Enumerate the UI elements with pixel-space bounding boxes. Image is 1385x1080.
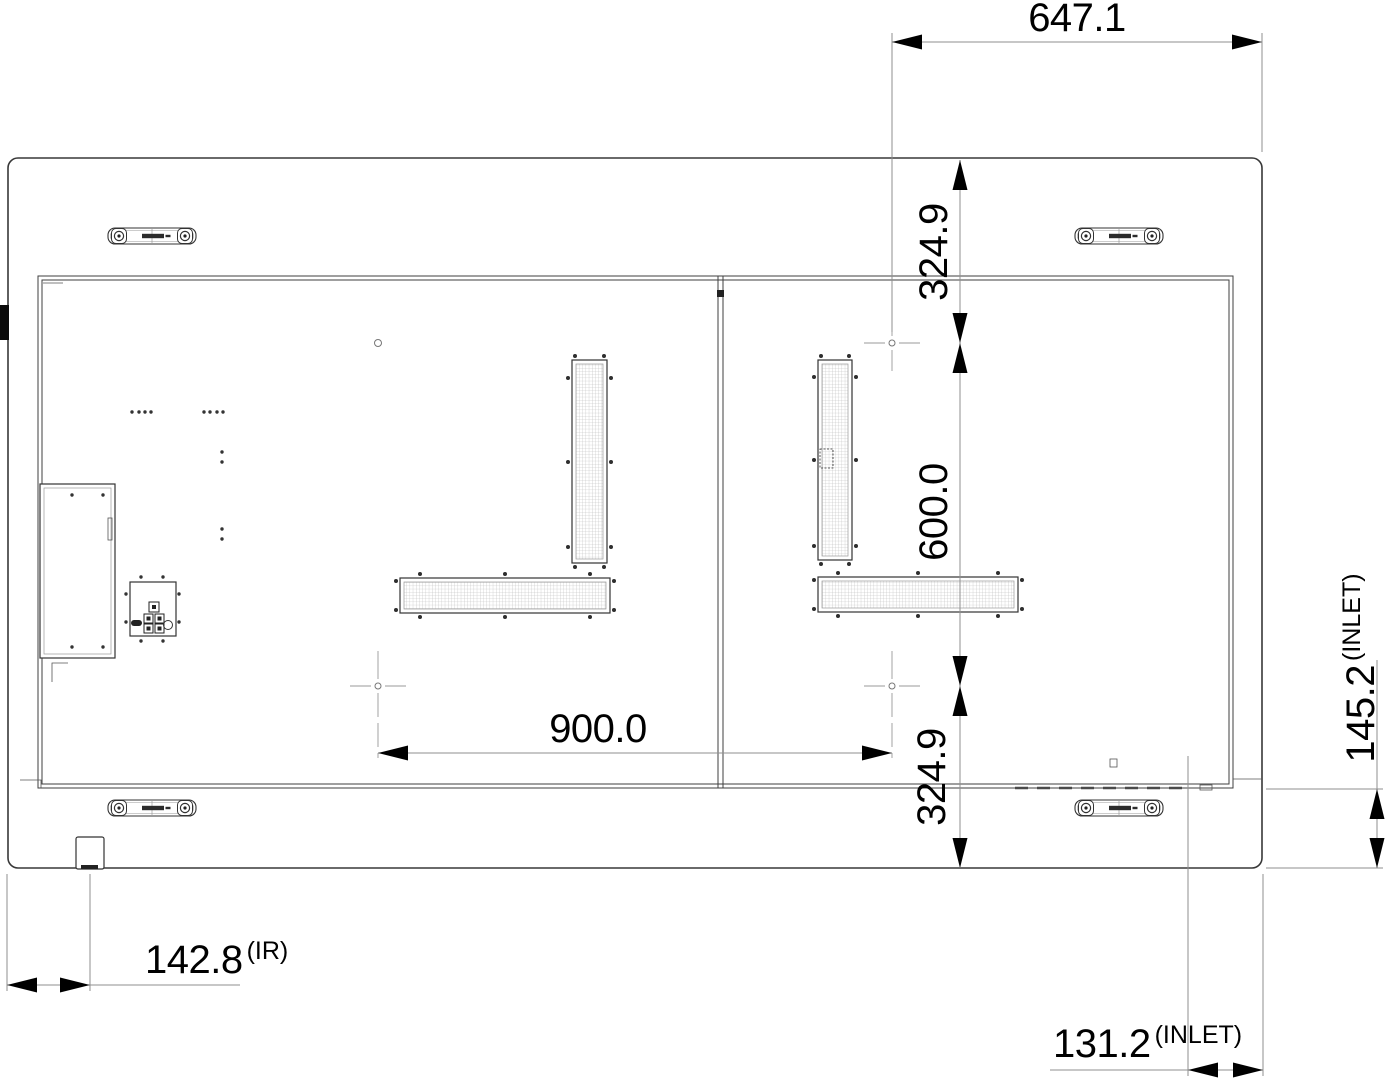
- dim-ir-label: 142.8(IR): [145, 937, 288, 982]
- handle-top-right: [1075, 228, 1163, 244]
- dim-mount-width-label: 900.0: [549, 707, 647, 751]
- terminal-cover: [40, 484, 115, 658]
- handle-bottom-right: [1075, 800, 1163, 816]
- dim-ir-offset: 142.8(IR): [7, 874, 288, 993]
- handle-top-left: [108, 228, 196, 244]
- handle-bottom-left: [108, 800, 196, 816]
- dim-right-lower-label: 324.9: [910, 728, 954, 826]
- ir-sensor-box: [76, 837, 104, 869]
- dimension-drawing-page: 647.1 324.9 600.0 324.9 900.0 145.2(INLE…: [0, 0, 1385, 1080]
- vent-right-vertical: [812, 354, 858, 566]
- ir-window: [131, 620, 142, 626]
- side-ac-switch-tab: [0, 305, 9, 340]
- dim-bottom-inlet-label: 131.2(INLET): [1053, 1021, 1242, 1066]
- vent-right-horizontal: [812, 571, 1024, 618]
- dim-right-upper-label: 324.9: [912, 203, 956, 301]
- dim-mount-height-label: 600.0: [912, 463, 956, 561]
- vent-left-horizontal: [394, 572, 616, 619]
- vent-left-vertical: [566, 354, 613, 569]
- control-button-cluster: [124, 575, 180, 642]
- display-rear-dimension-drawing: 647.1 324.9 600.0 324.9 900.0 145.2(INLE…: [0, 0, 1385, 1080]
- divider-latch: [717, 290, 724, 297]
- panel-outer-edge: [8, 158, 1262, 868]
- dim-side-inlet-label: 145.2(INLET): [1338, 573, 1383, 762]
- dim-top-width-label: 647.1: [1028, 0, 1126, 40]
- dim-side-inlet: 145.2(INLET): [1266, 573, 1385, 868]
